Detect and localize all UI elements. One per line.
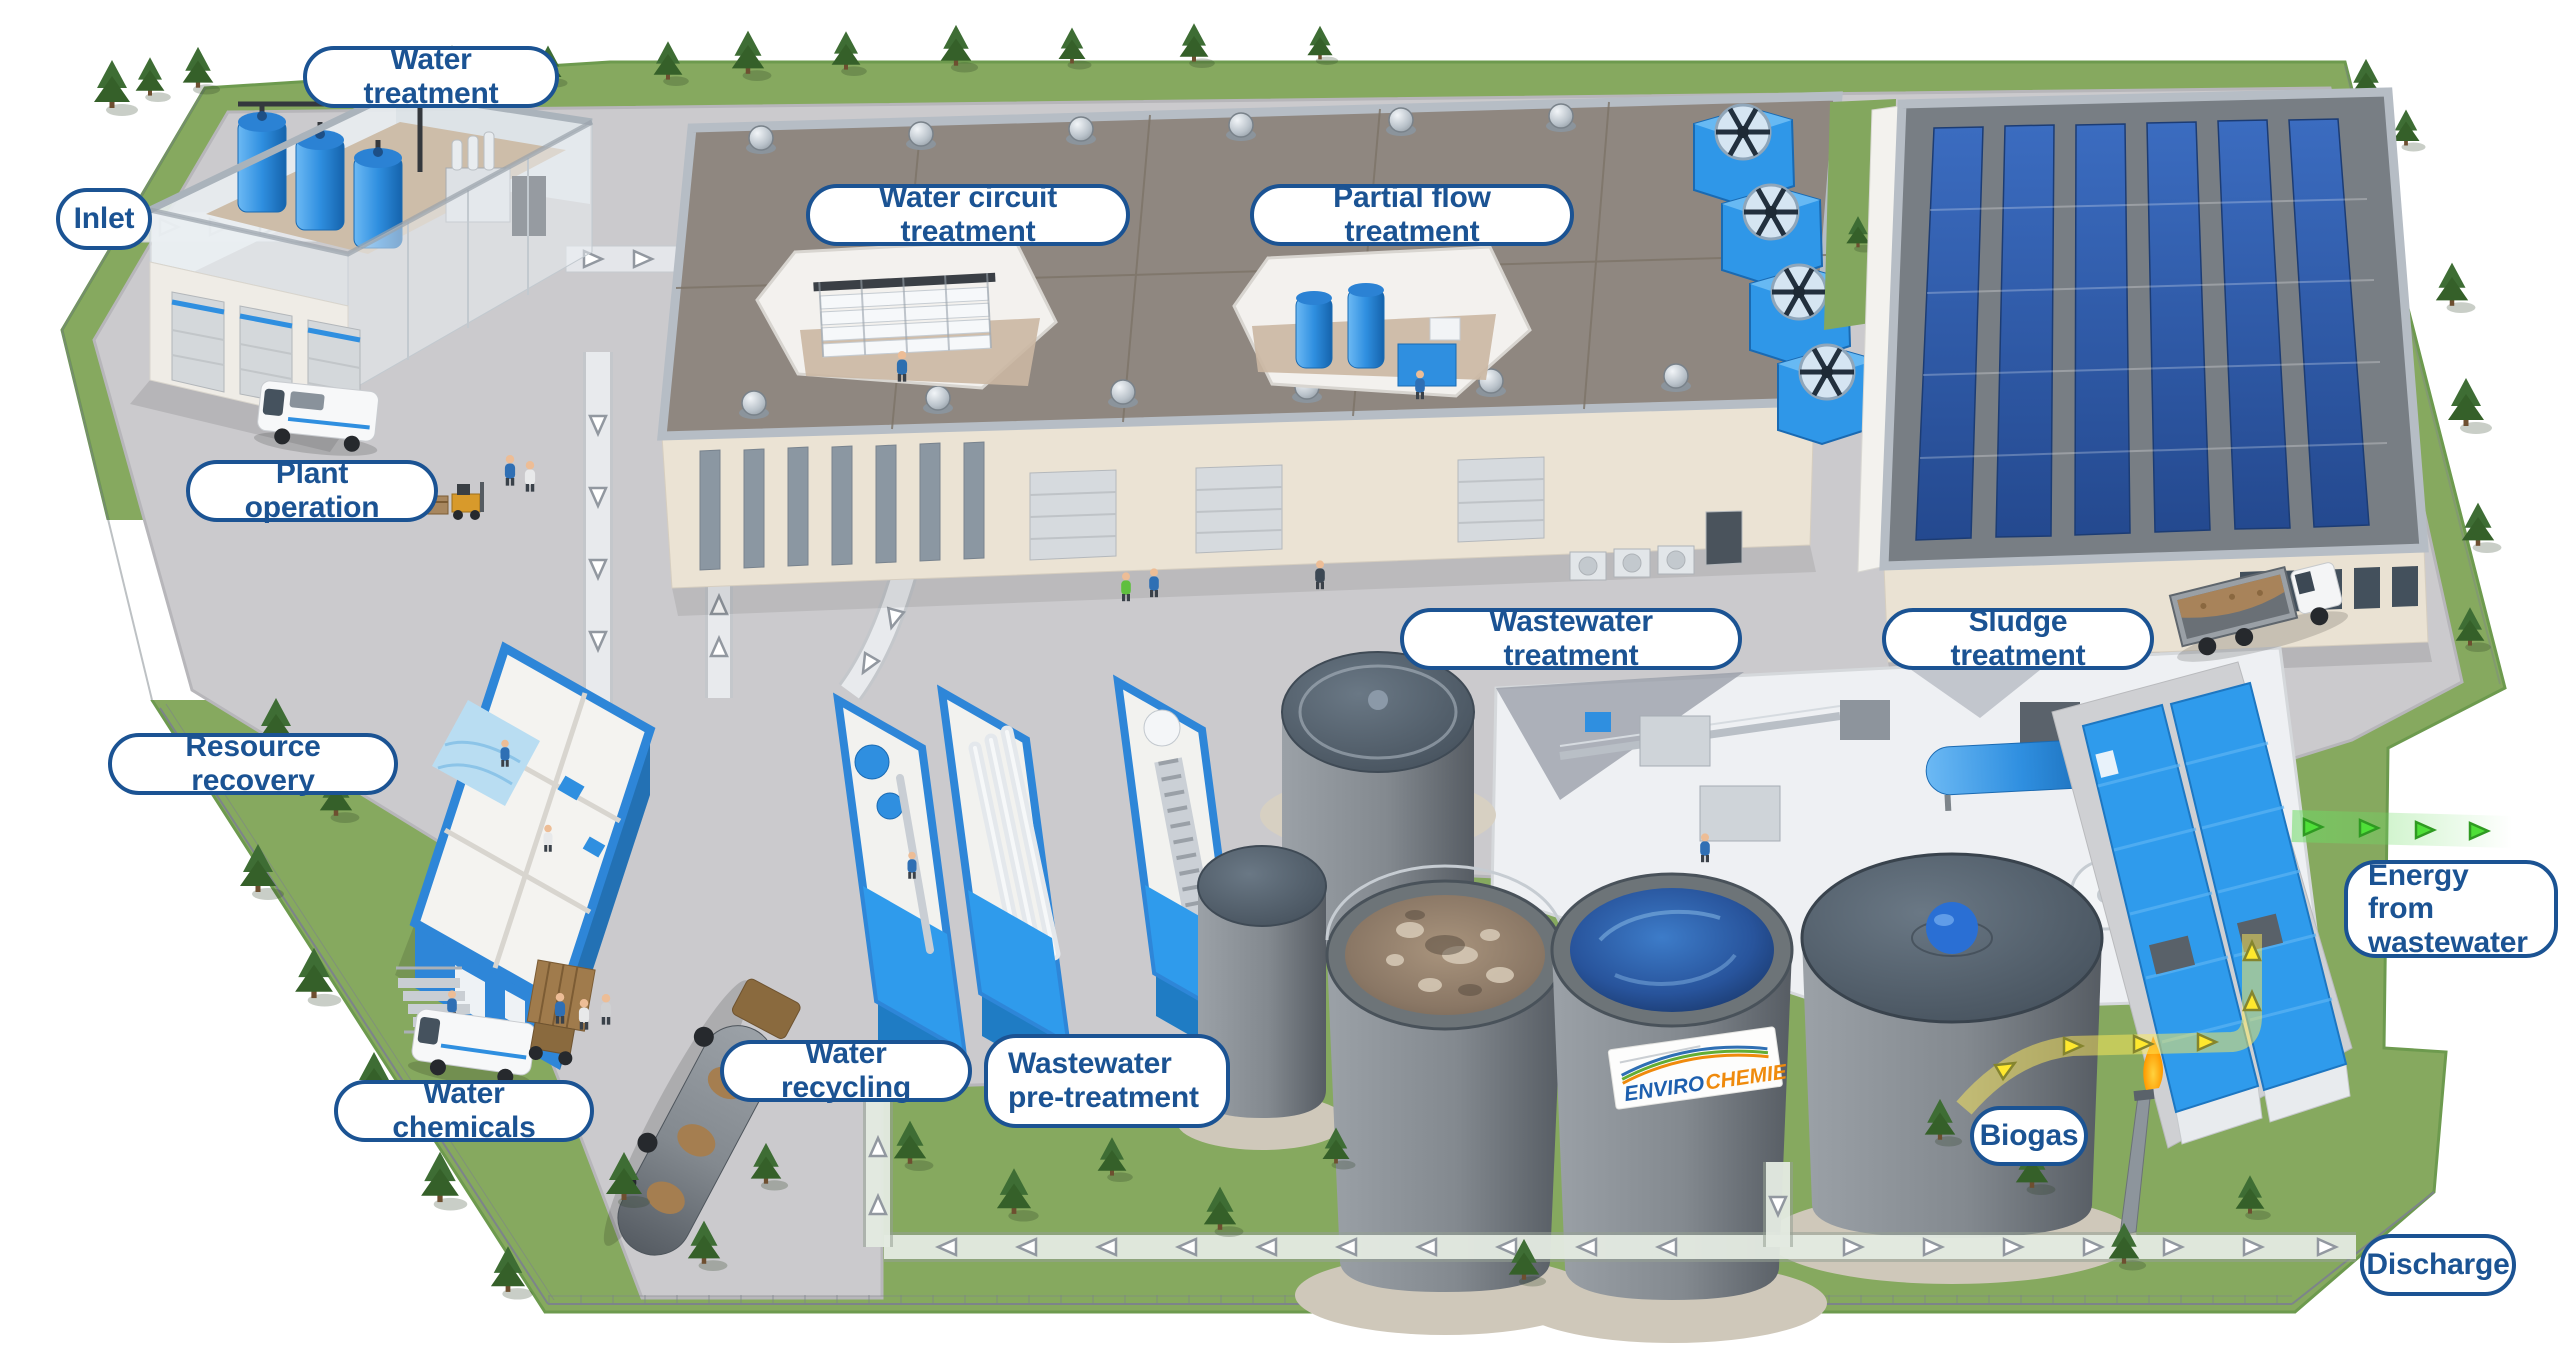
label-resource-recovery[interactable]: Resource recovery	[108, 733, 398, 795]
label-discharge[interactable]: Discharge	[2360, 1234, 2516, 1296]
biogas-dome	[1926, 902, 1978, 954]
label-water-circuit-treatment[interactable]: Water circuit treatment	[806, 184, 1130, 246]
label-sludge-treatment[interactable]: Sludge treatment	[1882, 608, 2154, 670]
main-hall	[662, 96, 1878, 616]
label-water-treatment[interactable]: Water treatment	[303, 46, 559, 108]
label-biogas-text: Biogas	[1980, 1119, 2079, 1153]
label-inlet-text: Inlet	[74, 202, 135, 236]
label-water-chemicals-text: Water chemicals	[354, 1077, 574, 1144]
label-water-recycling-text: Water recycling	[740, 1037, 952, 1104]
label-water-treatment-text: Water treatment	[323, 43, 539, 110]
aeration-tank	[1327, 866, 1563, 1292]
label-energy-from-wastewater-text: Energy from wastewater	[2368, 859, 2534, 960]
partial-flow-treatment-cutaway	[1234, 247, 1530, 399]
label-water-circuit-treatment-text: Water circuit treatment	[826, 181, 1110, 248]
label-wastewater-pre-treatment[interactable]: Wastewater pre-treatment	[984, 1034, 1230, 1128]
label-energy-from-wastewater[interactable]: Energy from wastewater	[2344, 860, 2558, 958]
label-water-chemicals[interactable]: Water chemicals	[334, 1080, 594, 1142]
label-plant-operation[interactable]: Plant operation	[186, 460, 438, 522]
label-wastewater-pre-treatment-text: Wastewater pre-treatment	[1008, 1047, 1206, 1114]
label-discharge-text: Discharge	[2366, 1248, 2509, 1282]
label-wastewater-treatment-text: Wastewater treatment	[1420, 605, 1722, 672]
plant-overview-page: ENVIRO CHEMIE	[0, 0, 2560, 1354]
label-wastewater-treatment[interactable]: Wastewater treatment	[1400, 608, 1742, 670]
label-water-recycling[interactable]: Water recycling	[720, 1040, 972, 1102]
label-sludge-treatment-text: Sludge treatment	[1902, 605, 2134, 672]
label-biogas[interactable]: Biogas	[1970, 1106, 2088, 1166]
label-inlet[interactable]: Inlet	[56, 188, 152, 250]
energy-flow	[2292, 819, 2512, 839]
water-circuit-treatment-cutaway	[757, 240, 1056, 388]
label-partial-flow-treatment[interactable]: Partial flow treatment	[1250, 184, 1574, 246]
label-partial-flow-treatment-text: Partial flow treatment	[1270, 181, 1554, 248]
solar-building	[1858, 92, 2432, 684]
label-resource-recovery-text: Resource recovery	[128, 730, 378, 797]
label-plant-operation-text: Plant operation	[206, 457, 418, 524]
